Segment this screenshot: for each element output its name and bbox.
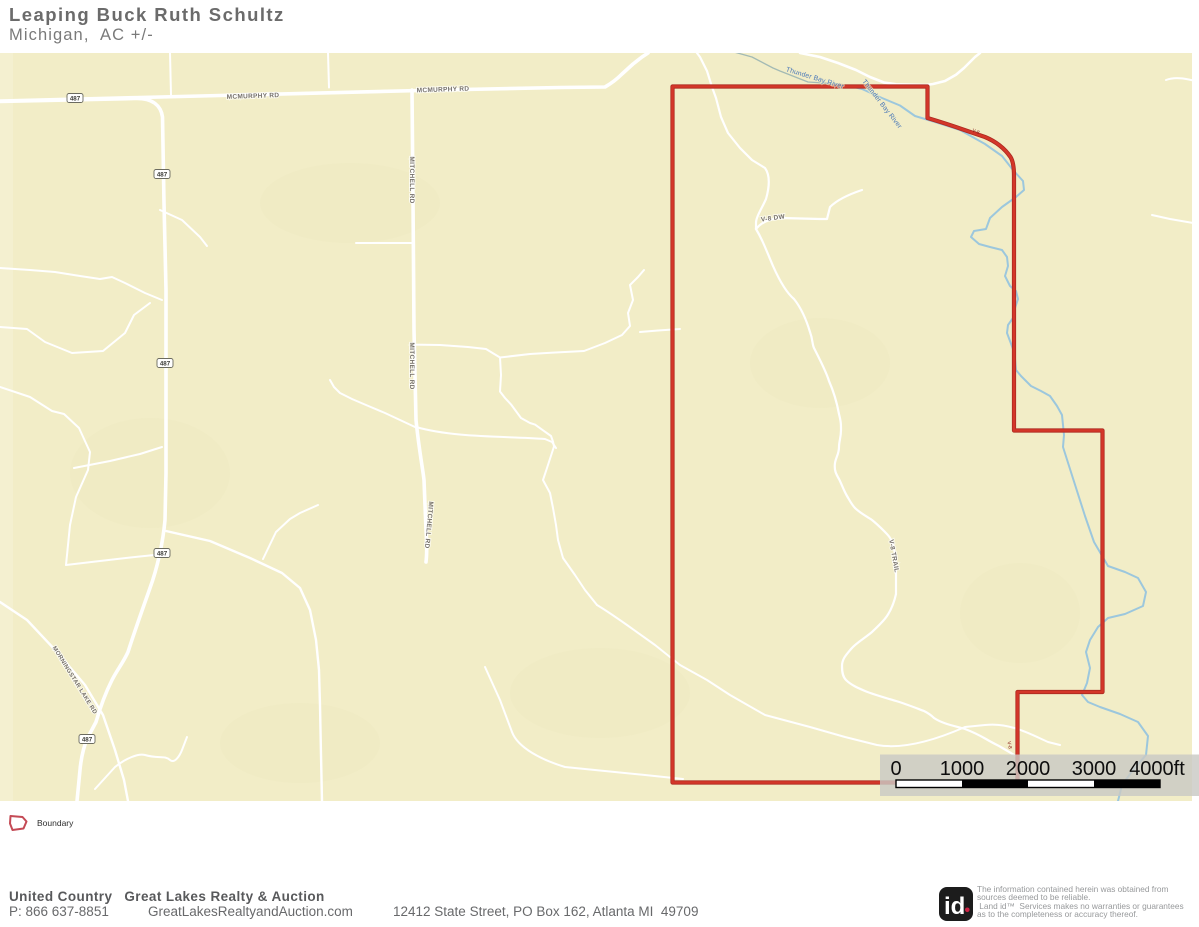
svg-text:4000ft: 4000ft — [1129, 758, 1185, 780]
svg-text:2000: 2000 — [1006, 758, 1051, 780]
svg-text:487: 487 — [157, 550, 168, 557]
svg-text:487: 487 — [160, 360, 171, 367]
svg-text:MITCHELL RD: MITCHELL RD — [408, 156, 415, 203]
svg-text:487: 487 — [70, 95, 81, 102]
svg-text:0: 0 — [890, 758, 901, 780]
svg-text:487: 487 — [82, 736, 93, 743]
svg-text:MITCHELL RD: MITCHELL RD — [408, 342, 415, 389]
svg-text:1000: 1000 — [940, 758, 985, 780]
svg-text:id: id — [944, 893, 965, 920]
svg-text:487: 487 — [157, 171, 168, 178]
svg-text:3000: 3000 — [1072, 758, 1117, 780]
